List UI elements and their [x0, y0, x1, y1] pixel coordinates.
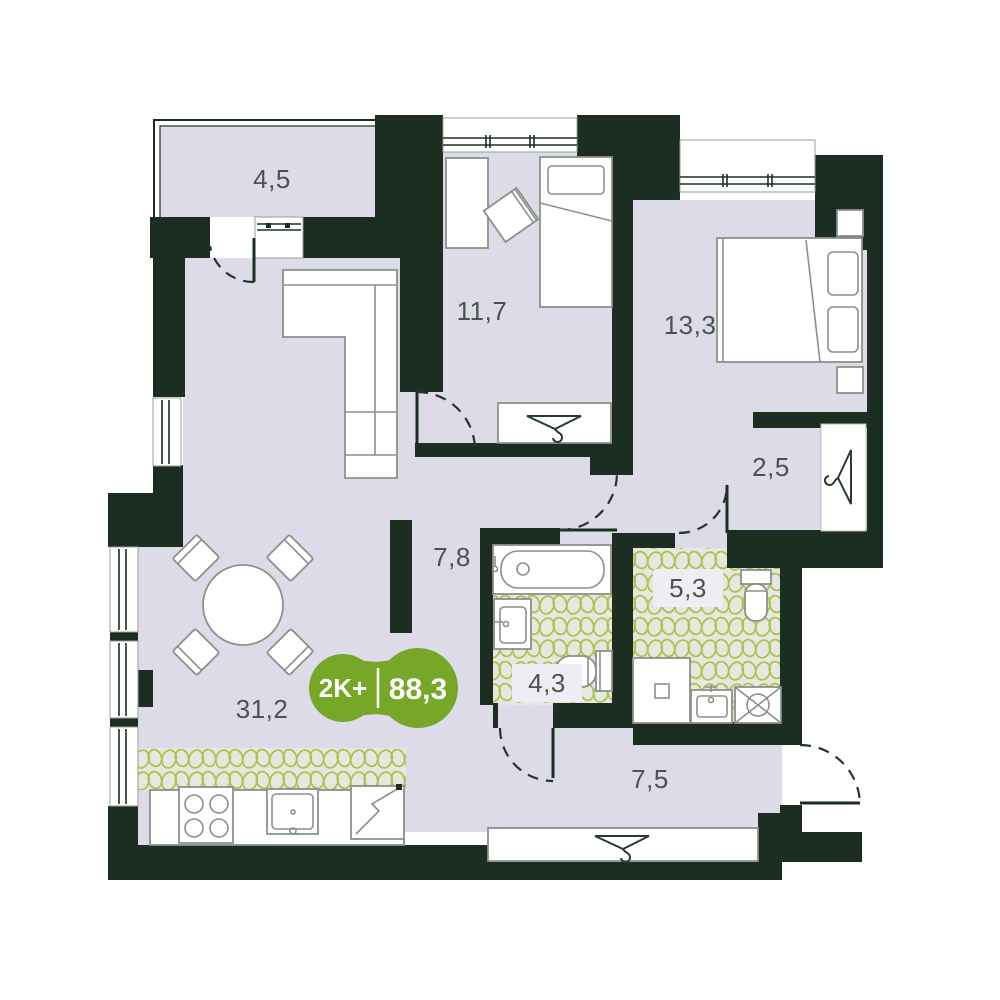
floorplan-drawing: 4,5 11,7 13,3 2,5 7,8 31,2 4,3 5,3 7,5 2… [0, 0, 1000, 1000]
room-label-toilet: 5,3 [669, 573, 707, 603]
window-latch-icon [266, 223, 271, 228]
fridge [351, 784, 404, 839]
room-label-bedroom2: 13,3 [664, 310, 717, 340]
toilet [741, 570, 771, 621]
floorplan-canvas: 4,5 11,7 13,3 2,5 7,8 31,2 4,3 5,3 7,5 2… [0, 0, 1000, 1000]
double-bed [717, 238, 862, 362]
washing-machine [735, 687, 781, 723]
nightstand [837, 210, 863, 236]
wardrobe-bedroom1 [498, 403, 611, 443]
room-label-balcony: 4,5 [253, 164, 291, 194]
shower-tray [633, 658, 690, 723]
washbasin [494, 599, 531, 649]
washbasin [691, 685, 732, 723]
room-label-closet: 2,5 [752, 452, 790, 482]
single-bed [540, 157, 612, 307]
desk [446, 158, 488, 248]
badge-area-label: 88,3 [389, 673, 447, 706]
badge-type-label: 2K+ [319, 673, 367, 703]
closet-wardrobe [821, 424, 866, 531]
hallway-wardrobe [488, 828, 758, 862]
kitchen-tile-pattern [138, 748, 406, 790]
room-label-bedroom1: 11,7 [457, 296, 508, 326]
bathtub [493, 545, 612, 594]
kitchen-sink [267, 789, 318, 834]
room-label-living: 31,2 [236, 694, 289, 724]
room-label-hall: 7,8 [433, 542, 471, 572]
dining-table [203, 565, 283, 645]
stove [179, 787, 233, 843]
room-label-hallway: 7,5 [631, 764, 669, 794]
room-label-bathroom: 4,3 [528, 668, 566, 698]
nightstand [837, 367, 863, 393]
window-latch-icon [285, 223, 290, 228]
